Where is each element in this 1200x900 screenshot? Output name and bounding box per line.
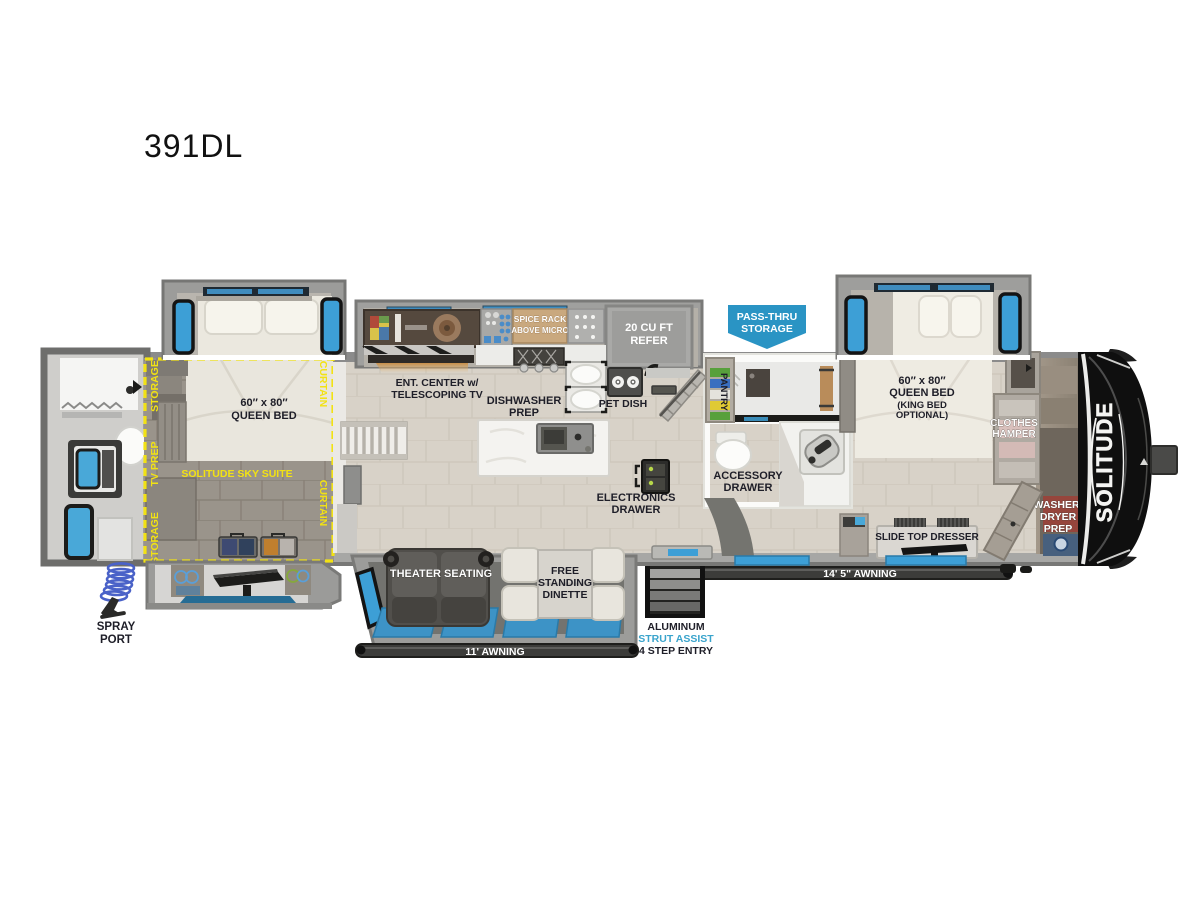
svg-text:QUEEN BED: QUEEN BED — [231, 410, 296, 422]
svg-text:SOLITUDE SKY SUITE: SOLITUDE SKY SUITE — [181, 468, 292, 480]
svg-text:STORAGE: STORAGE — [149, 512, 161, 564]
svg-text:ABOVE MICRO: ABOVE MICRO — [511, 326, 568, 335]
svg-text:60″ x 80″: 60″ x 80″ — [240, 397, 288, 409]
svg-text:STRUT ASSIST: STRUT ASSIST — [638, 633, 714, 645]
svg-text:TV PREP: TV PREP — [149, 442, 161, 487]
svg-text:PREP: PREP — [1044, 523, 1073, 535]
svg-text:4 STEP ENTRY: 4 STEP ENTRY — [639, 645, 713, 657]
svg-text:DRAWER: DRAWER — [612, 504, 661, 516]
svg-text:CLOTHES: CLOTHES — [990, 418, 1038, 429]
svg-text:SPRAY: SPRAY — [97, 621, 136, 633]
svg-text:11' AWNING: 11' AWNING — [465, 646, 524, 658]
svg-text:PREP: PREP — [509, 407, 539, 419]
svg-text:DRYER: DRYER — [1040, 511, 1077, 523]
svg-text:TELESCOPING TV: TELESCOPING TV — [391, 389, 483, 401]
svg-text:THEATER SEATING: THEATER SEATING — [390, 568, 492, 580]
svg-text:ENT. CENTER w/: ENT. CENTER w/ — [396, 377, 479, 389]
svg-text:PASS-THRU: PASS-THRU — [737, 311, 797, 323]
svg-text:DISHWASHER: DISHWASHER — [487, 395, 562, 407]
svg-text:20 CU FT: 20 CU FT — [625, 322, 673, 334]
svg-text:STORAGE: STORAGE — [149, 360, 161, 412]
svg-text:DINETTE: DINETTE — [543, 589, 588, 601]
svg-text:WASHER/: WASHER/ — [1033, 499, 1082, 511]
svg-text:STORAGE: STORAGE — [741, 323, 793, 335]
svg-text:REFER: REFER — [630, 335, 667, 347]
svg-text:PORT: PORT — [100, 634, 132, 646]
svg-text:ACCESSORY: ACCESSORY — [713, 470, 783, 482]
svg-text:60″ x 80″: 60″ x 80″ — [898, 375, 946, 387]
svg-text:ALUMINUM: ALUMINUM — [647, 621, 704, 633]
svg-text:SPICE RACK: SPICE RACK — [514, 314, 567, 324]
svg-text:QUEEN BED: QUEEN BED — [889, 387, 954, 399]
svg-text:HAMPER: HAMPER — [992, 429, 1036, 440]
svg-text:ELECTRONICS: ELECTRONICS — [597, 492, 676, 504]
svg-text:DRAWER: DRAWER — [724, 482, 773, 494]
svg-text:PET DISH: PET DISH — [599, 398, 647, 410]
svg-text:14' 5" AWNING: 14' 5" AWNING — [823, 568, 897, 580]
svg-text:OPTIONAL): OPTIONAL) — [896, 410, 948, 421]
svg-text:CURTAIN: CURTAIN — [317, 361, 329, 407]
svg-text:391DL: 391DL — [144, 128, 243, 164]
svg-text:SLIDE TOP DRESSER: SLIDE TOP DRESSER — [875, 532, 979, 543]
svg-text:PANTRY: PANTRY — [718, 373, 729, 412]
svg-text:STANDING: STANDING — [538, 577, 592, 589]
svg-text:CURTAIN: CURTAIN — [317, 480, 329, 526]
svg-text:FREE: FREE — [551, 565, 579, 577]
